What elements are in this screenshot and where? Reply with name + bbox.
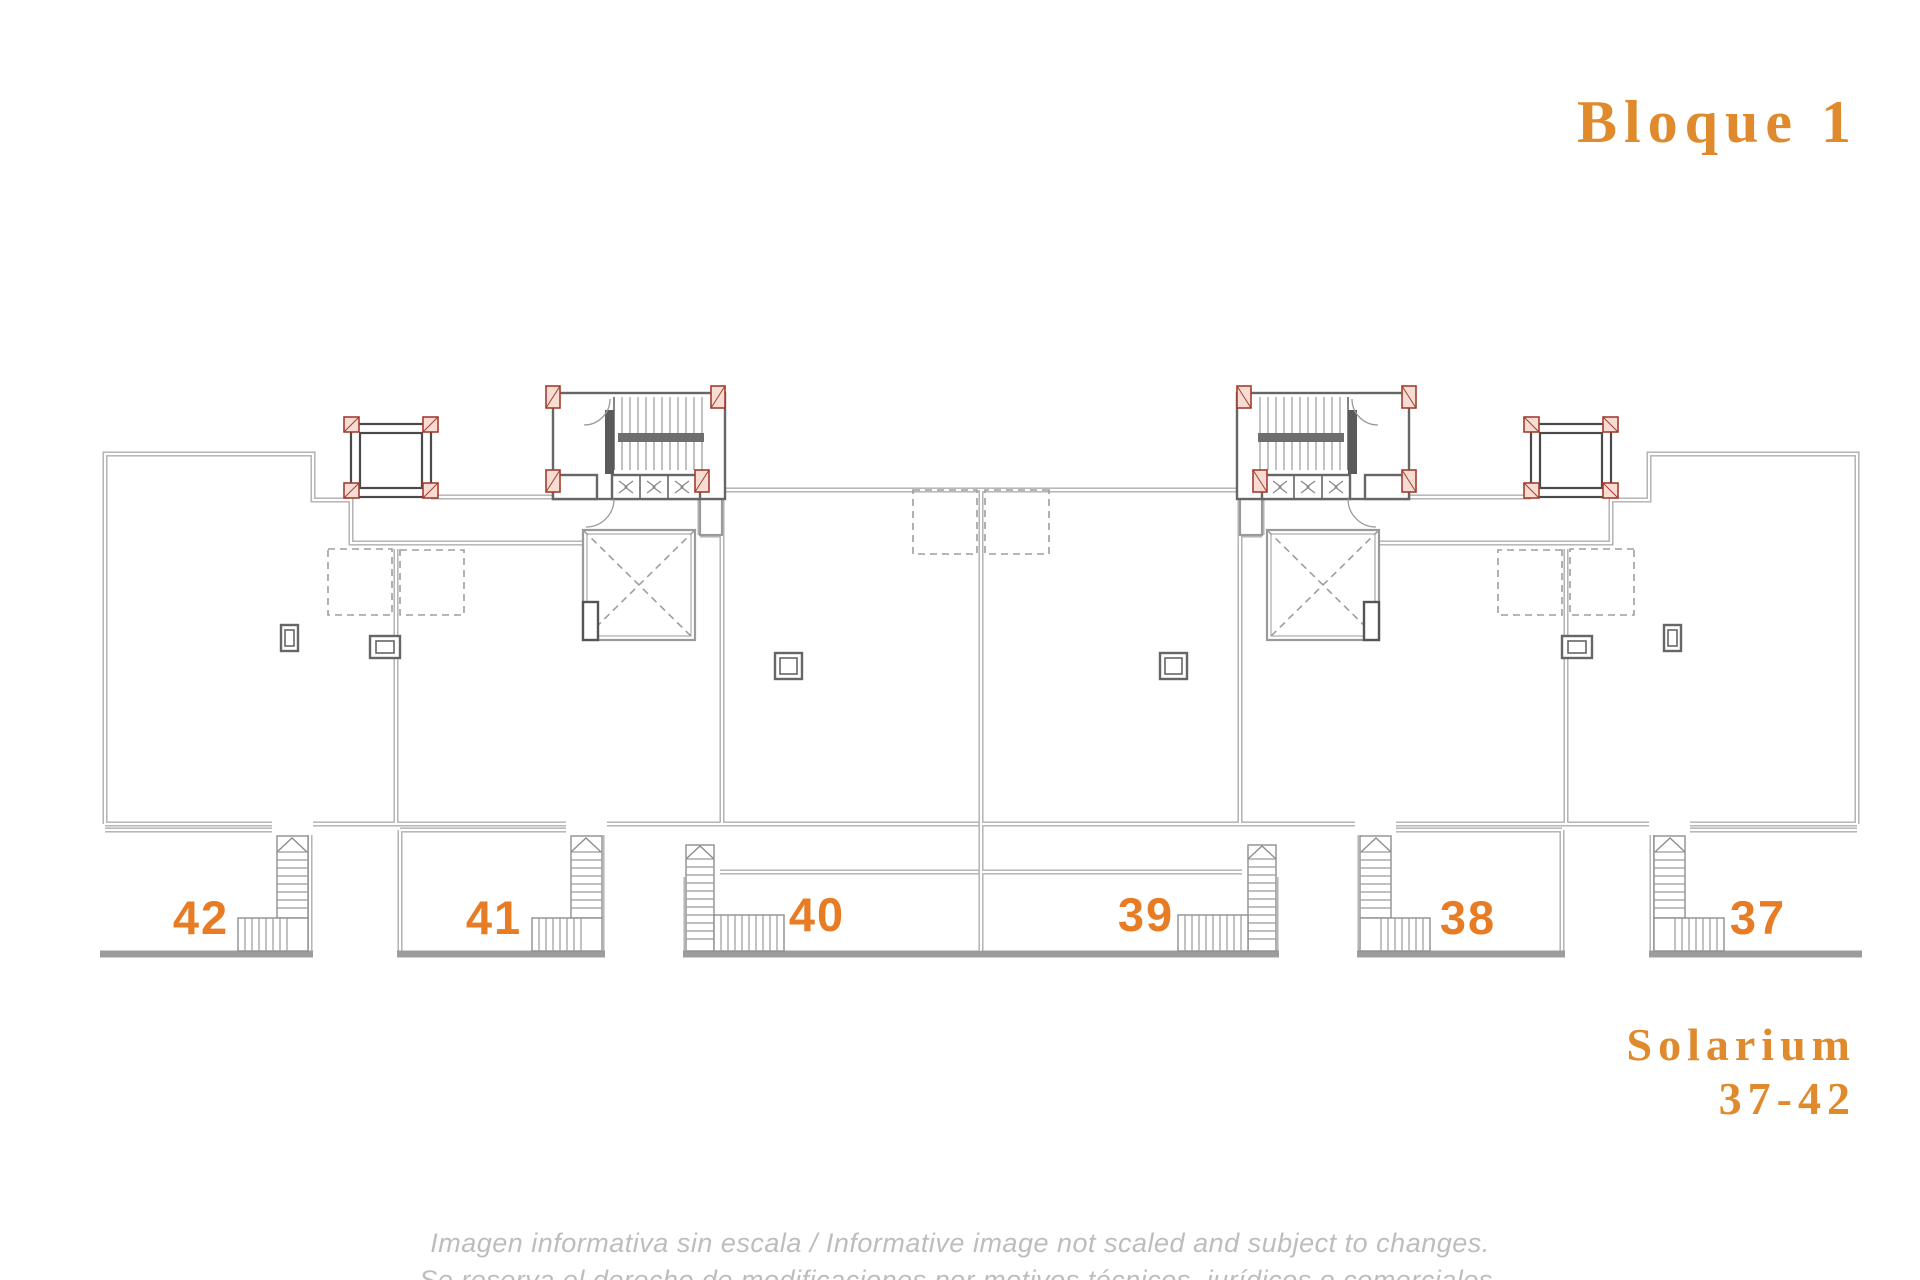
page: { "header": { "title": "Bloque 1" }, "pl…: [0, 0, 1920, 1280]
unit-number-41: 41: [466, 891, 522, 944]
unit-number-39: 39: [1118, 888, 1174, 941]
solarium-name: Solarium: [1627, 1018, 1856, 1072]
disclaimer-line-2: Se reserva el derecho de modificaciones …: [0, 1262, 1920, 1280]
unit-number-38: 38: [1440, 891, 1496, 944]
building-wing-right: [981, 386, 1862, 954]
building-wing-left: [100, 386, 981, 954]
unit-number-37: 37: [1730, 891, 1786, 944]
unit-number-40: 40: [789, 888, 845, 941]
disclaimer: Imagen informativa sin escala / Informat…: [0, 1225, 1920, 1280]
solarium-range: 37-42: [1627, 1072, 1856, 1126]
solarium-label: Solarium 37-42: [1627, 1018, 1856, 1126]
disclaimer-line-1: Imagen informativa sin escala / Informat…: [0, 1225, 1920, 1262]
unit-number-42: 42: [173, 891, 229, 944]
block-title: Bloque 1: [1577, 88, 1858, 157]
